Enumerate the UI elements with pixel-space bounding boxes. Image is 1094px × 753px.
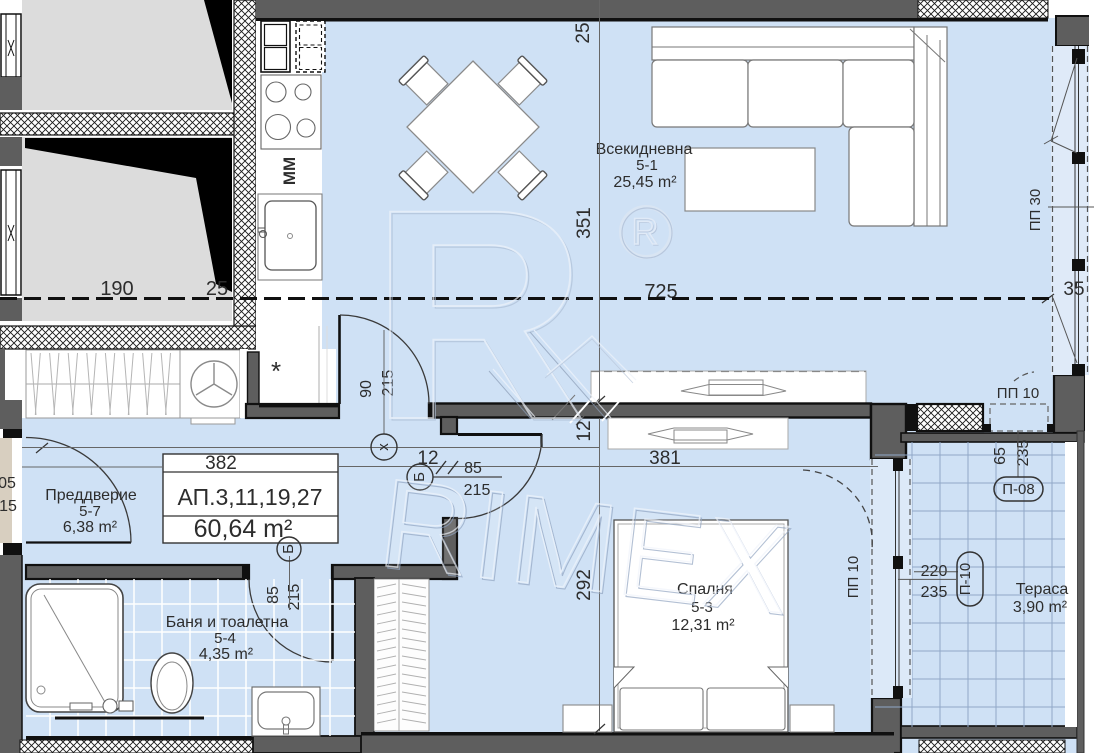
svg-text:6,38 m²: 6,38 m² bbox=[63, 519, 118, 536]
svg-text:15: 15 bbox=[0, 498, 17, 515]
svg-text:25,45 m²: 25,45 m² bbox=[613, 174, 677, 191]
svg-text:ПП 10: ПП 10 bbox=[845, 556, 862, 598]
svg-text:85: 85 bbox=[265, 586, 282, 604]
svg-text:190: 190 bbox=[100, 278, 133, 300]
svg-text:35: 35 bbox=[1063, 279, 1084, 300]
svg-text:4,35 m²: 4,35 m² bbox=[199, 646, 254, 663]
svg-text:R: R bbox=[370, 146, 587, 482]
svg-text:Б: Б bbox=[280, 544, 297, 554]
svg-text:25: 25 bbox=[206, 278, 228, 300]
svg-text:3,90 m²: 3,90 m² bbox=[1013, 599, 1068, 616]
svg-text:Всекидневна: Всекидневна bbox=[596, 141, 693, 158]
svg-text:05: 05 bbox=[0, 475, 16, 492]
svg-text:60,64 m²: 60,64 m² bbox=[194, 515, 293, 543]
svg-text:5-4: 5-4 bbox=[214, 630, 236, 647]
svg-text:*: * bbox=[271, 356, 281, 386]
svg-text:ПП 30: ПП 30 bbox=[1027, 189, 1044, 231]
svg-text:Преддверие: Преддверие bbox=[45, 487, 137, 504]
svg-text:215: 215 bbox=[286, 584, 303, 611]
svg-text:П-10: П-10 bbox=[957, 563, 974, 595]
svg-text:25: 25 bbox=[573, 22, 594, 43]
svg-text:MM: MM bbox=[280, 157, 299, 185]
svg-text:АП.3,11,19,27: АП.3,11,19,27 bbox=[177, 484, 322, 510]
svg-text:381: 381 bbox=[649, 448, 681, 469]
svg-text:5-7: 5-7 bbox=[79, 503, 101, 520]
svg-text:Тераса: Тераса bbox=[1016, 581, 1069, 598]
svg-text:235: 235 bbox=[921, 584, 948, 601]
svg-text:65: 65 bbox=[992, 447, 1009, 465]
svg-text:Баня и тоалетна: Баня и тоалетна bbox=[166, 614, 289, 631]
svg-text:П-08: П-08 bbox=[1002, 481, 1034, 498]
svg-text:5-1: 5-1 bbox=[636, 157, 658, 174]
svg-text:ПП 10: ПП 10 bbox=[997, 385, 1039, 402]
svg-text:382: 382 bbox=[205, 453, 237, 474]
svg-text:R: R bbox=[632, 211, 659, 252]
